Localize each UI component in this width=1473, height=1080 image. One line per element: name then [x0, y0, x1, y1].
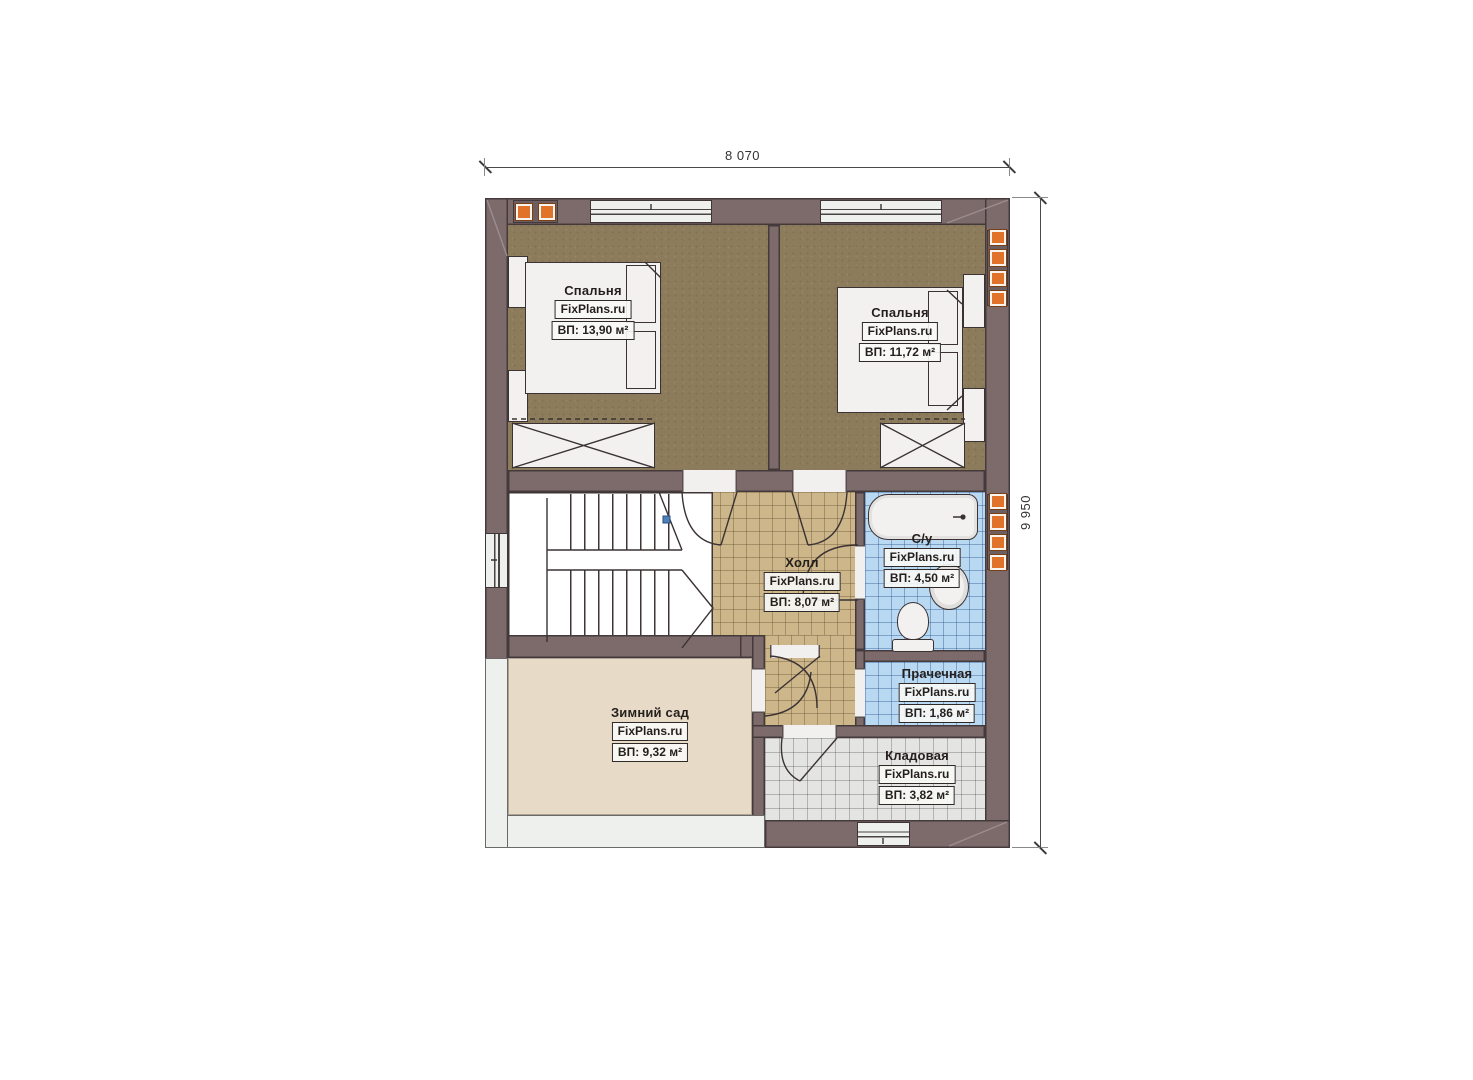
door-opening-bathroom	[855, 545, 865, 600]
wardrobe-2	[880, 423, 965, 468]
door-opening-winter-garden	[752, 668, 765, 713]
door-opening-bedroom-1	[682, 470, 737, 492]
brand-box: FixPlans.ru	[884, 548, 961, 567]
window-left	[485, 533, 508, 588]
winter-garden-glazing-bottom	[485, 815, 765, 848]
vent-icon	[990, 250, 1006, 265]
brand-box: FixPlans.ru	[899, 683, 976, 702]
room-name: Прачечная	[902, 666, 973, 681]
area-box: ВП: 9,32 м²	[612, 743, 688, 762]
wall-mid	[508, 470, 985, 492]
door-opening-bedroom-2	[792, 470, 847, 492]
vent-icon	[516, 204, 532, 220]
vent-block-top	[513, 200, 558, 223]
nightstand	[963, 388, 985, 442]
area-box: ВП: 4,50 м²	[884, 569, 960, 588]
area-box: ВП: 8,07 м²	[764, 593, 840, 612]
vent-icon	[990, 514, 1006, 529]
vent-icon	[990, 535, 1006, 550]
extension-line	[1012, 847, 1048, 848]
wardrobe-1	[512, 423, 655, 468]
room-name: С/у	[912, 531, 933, 546]
toilet-tank	[892, 639, 934, 652]
window-top-left	[590, 200, 712, 223]
room-label-laundry: Прачечная FixPlans.ru ВП: 1,86 м²	[899, 666, 976, 723]
vent-icon	[990, 555, 1006, 570]
area-box: ВП: 3,82 м²	[879, 786, 955, 805]
window-storage	[857, 822, 910, 846]
wall-left	[485, 198, 508, 660]
brand-box: FixPlans.ru	[764, 572, 841, 591]
vent-icon	[990, 494, 1006, 509]
right-dimension-line	[1040, 198, 1041, 848]
room-name: Зимний сад	[611, 705, 689, 720]
wall-bedroom-partition	[768, 225, 780, 470]
vent-block-right-lower	[987, 494, 1008, 570]
brand-box: FixPlans.ru	[862, 322, 939, 341]
stair-flight-up	[570, 494, 682, 550]
vent-icon	[990, 271, 1006, 286]
vent-block-right-upper	[987, 230, 1008, 306]
brand-box: FixPlans.ru	[879, 765, 956, 784]
room-label-storage: Кладовая FixPlans.ru ВП: 3,82 м²	[879, 748, 956, 805]
window-top-right	[820, 200, 942, 223]
room-name: Холл	[785, 555, 818, 570]
vent-icon	[990, 291, 1006, 306]
top-dimension-line	[485, 167, 1010, 168]
door-opening-laundry	[855, 668, 865, 718]
room-name: Спальня	[871, 305, 929, 320]
room-label-bathroom: С/у FixPlans.ru ВП: 4,50 м²	[884, 531, 961, 588]
area-box: ВП: 13,90 м²	[552, 321, 635, 340]
nightstand	[963, 274, 985, 328]
floor-plan-page: { "plan": { "title": "second-floor-plan"…	[0, 0, 1473, 1080]
staircase	[508, 492, 713, 648]
right-dimension-label: 9 950	[1018, 495, 1033, 530]
door-opening-vestibule	[770, 645, 820, 658]
room-label-bedroom-2: Спальня FixPlans.ru ВП: 11,72 м²	[859, 305, 941, 362]
room-label-hall: Холл FixPlans.ru ВП: 8,07 м²	[764, 555, 841, 612]
room-label-winter-garden: Зимний сад FixPlans.ru ВП: 9,32 м²	[611, 705, 689, 762]
winter-garden-glazing-left	[485, 658, 508, 848]
vent-icon	[539, 204, 555, 220]
floor-plan: Спальня FixPlans.ru ВП: 13,90 м² Спальня…	[485, 198, 1010, 848]
vent-icon	[990, 230, 1006, 245]
room-label-bedroom-1: Спальня FixPlans.ru ВП: 13,90 м²	[552, 283, 635, 340]
brand-box: FixPlans.ru	[555, 300, 632, 319]
wall-winter-garden-top	[508, 635, 752, 658]
area-box: ВП: 1,86 м²	[899, 704, 975, 723]
top-dimension-label: 8 070	[725, 148, 760, 163]
toilet-bowl	[897, 602, 929, 640]
room-name: Кладовая	[885, 748, 949, 763]
brand-box: FixPlans.ru	[612, 722, 689, 741]
extension-line	[1012, 197, 1048, 198]
room-name: Спальня	[564, 283, 622, 298]
area-box: ВП: 11,72 м²	[859, 343, 941, 362]
door-opening-storage	[782, 725, 837, 738]
